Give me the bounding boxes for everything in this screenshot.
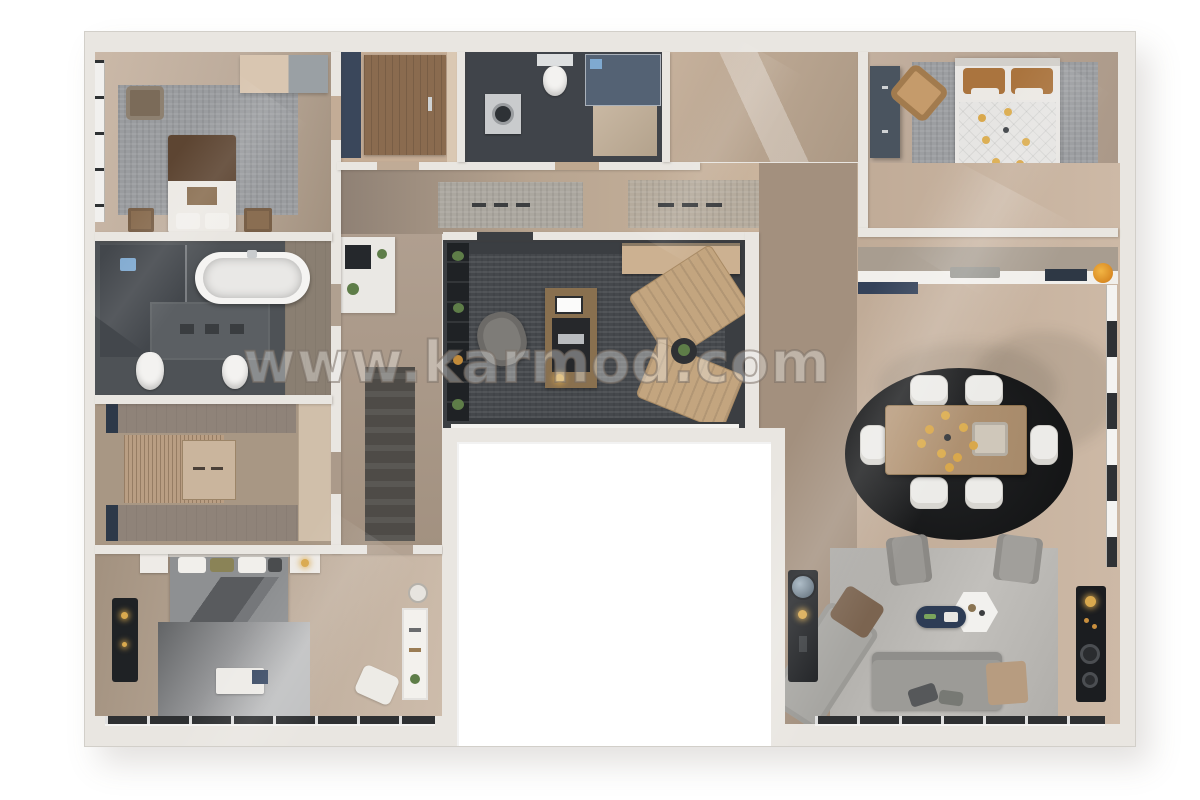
coffee-machine bbox=[345, 245, 371, 269]
navy-box bbox=[252, 670, 268, 684]
plant bbox=[452, 251, 464, 261]
quilted-duvet bbox=[959, 102, 1056, 172]
room-living-dining bbox=[759, 163, 1120, 724]
dining-table bbox=[885, 405, 1027, 475]
door-opening bbox=[367, 545, 413, 554]
tan-cushion bbox=[986, 661, 1029, 706]
corridor-horizontal bbox=[337, 163, 772, 234]
toilet bbox=[136, 352, 164, 390]
decor-dash bbox=[706, 203, 722, 207]
plant bbox=[678, 344, 690, 356]
decor-sparkle bbox=[798, 610, 807, 619]
dining-chandelier bbox=[944, 434, 951, 441]
decor-dash bbox=[472, 203, 486, 207]
dining-chair bbox=[860, 425, 888, 465]
window-wall bbox=[1106, 285, 1117, 567]
room-hall-top bbox=[670, 52, 858, 162]
armchair-1 bbox=[885, 534, 933, 587]
drain bbox=[180, 324, 194, 334]
shower-head bbox=[590, 59, 602, 69]
sofa-seat bbox=[872, 652, 1002, 710]
media-console bbox=[1076, 586, 1106, 702]
wall-below-bedroom-tr bbox=[858, 228, 1118, 237]
speaker bbox=[1082, 672, 1098, 688]
coffee-station bbox=[339, 237, 395, 313]
dark-runner bbox=[365, 367, 415, 541]
duvet-brown bbox=[168, 135, 236, 181]
pillow bbox=[178, 557, 206, 573]
shelf-bottom bbox=[106, 505, 306, 541]
plant bbox=[347, 283, 359, 295]
side-table bbox=[671, 338, 697, 364]
tub-faucet bbox=[247, 250, 257, 258]
pillow bbox=[205, 213, 229, 229]
window-strip bbox=[95, 60, 105, 222]
bookshelf bbox=[447, 243, 469, 421]
pillow bbox=[1015, 88, 1043, 100]
toilet bbox=[543, 66, 567, 96]
window-band-bottom-right bbox=[815, 716, 1105, 726]
decor-dash bbox=[409, 648, 421, 652]
room-entry-hall bbox=[337, 52, 457, 162]
room-home-office bbox=[443, 238, 745, 430]
decor-sparkle bbox=[122, 642, 127, 647]
room-bathroom-top bbox=[465, 52, 662, 162]
runner-rug-1 bbox=[438, 182, 583, 228]
room-bedroom-bottom-left bbox=[95, 553, 442, 716]
door-handle bbox=[428, 97, 432, 111]
island-dresser bbox=[182, 440, 236, 500]
dining-chair bbox=[910, 375, 948, 407]
table-lamp bbox=[301, 559, 309, 567]
table-setting bbox=[972, 422, 1008, 456]
shelf-top bbox=[106, 403, 296, 433]
armchair-2 bbox=[992, 533, 1043, 584]
decor-dot bbox=[1092, 624, 1097, 629]
black-bench bbox=[112, 598, 138, 682]
island-cabinet bbox=[858, 282, 918, 294]
wall-bath-closet bbox=[95, 395, 332, 404]
decor-dash bbox=[658, 203, 674, 207]
plant bbox=[453, 303, 464, 313]
decor-sparkle bbox=[121, 612, 128, 619]
plan-cutout bbox=[443, 428, 785, 746]
room-bathroom-left bbox=[95, 240, 332, 396]
decor-dash bbox=[516, 203, 530, 207]
drain bbox=[205, 324, 219, 334]
wardrobe bbox=[240, 55, 328, 93]
plant bbox=[452, 399, 464, 410]
nightstand-right bbox=[290, 553, 320, 573]
wardrobe-handle bbox=[882, 130, 888, 133]
floor-plan bbox=[85, 32, 1135, 746]
door-opening bbox=[331, 284, 341, 326]
floor-plan-render: www.karmod.com bbox=[0, 0, 1200, 800]
runner-rug-2 bbox=[628, 180, 770, 228]
shelf-cap bbox=[106, 403, 118, 433]
plant bbox=[410, 674, 420, 684]
decor-dash bbox=[409, 628, 421, 632]
nightstand-left bbox=[128, 208, 154, 232]
shelf-cap bbox=[106, 505, 118, 541]
wall-bed-bath bbox=[95, 232, 332, 241]
pillow-dark bbox=[268, 558, 282, 572]
front-door bbox=[364, 55, 446, 155]
drain bbox=[230, 324, 244, 334]
laptop bbox=[558, 334, 584, 344]
wall-office-dining bbox=[745, 232, 759, 436]
globe-decor bbox=[790, 574, 816, 600]
desk-mat bbox=[552, 318, 590, 372]
desk-lamp bbox=[555, 374, 564, 383]
desk bbox=[545, 288, 597, 388]
nightstand-right bbox=[244, 208, 272, 232]
stool bbox=[408, 583, 428, 603]
toilet-tank bbox=[537, 54, 573, 66]
dining-chair bbox=[910, 477, 948, 509]
room-walk-in-closet bbox=[95, 403, 332, 545]
ceiling-chandelier bbox=[1003, 127, 1009, 133]
wardrobe-right bbox=[298, 403, 332, 541]
decor-dot bbox=[968, 604, 976, 612]
bookshelf bbox=[402, 608, 428, 700]
wall-entry-bath bbox=[457, 52, 465, 162]
dining-chair bbox=[965, 375, 1003, 407]
wall-hall-bedroom bbox=[858, 52, 868, 228]
plant bbox=[377, 249, 387, 259]
door-opening bbox=[377, 162, 419, 170]
glass-shower bbox=[585, 54, 661, 106]
navy-tray-table bbox=[916, 606, 966, 628]
aloe-plant bbox=[924, 614, 936, 619]
door-opening bbox=[555, 162, 599, 170]
kitchen-sink bbox=[950, 267, 1000, 278]
fruit-bowl bbox=[1093, 263, 1113, 283]
decor-dot bbox=[1084, 618, 1089, 623]
wall-bath-hall bbox=[662, 52, 670, 162]
room-bedroom-top-left bbox=[95, 52, 332, 233]
pillow bbox=[971, 88, 999, 100]
nightstand-left bbox=[140, 553, 168, 573]
decor-dash bbox=[682, 203, 698, 207]
decor-dot bbox=[979, 610, 985, 616]
wardrobe-handle bbox=[882, 86, 888, 89]
cooktop bbox=[1045, 269, 1087, 281]
decor-book bbox=[944, 612, 958, 622]
washer-door bbox=[492, 103, 514, 125]
pillow bbox=[176, 213, 200, 229]
floor-strip bbox=[447, 52, 457, 162]
bed-tray bbox=[187, 187, 217, 205]
pillow bbox=[238, 557, 266, 573]
decor-dash bbox=[494, 203, 508, 207]
remote bbox=[799, 636, 807, 652]
pillow-olive bbox=[210, 558, 234, 572]
door-opening bbox=[477, 232, 533, 240]
door-opening bbox=[331, 96, 341, 140]
bidet bbox=[222, 355, 248, 389]
door-opening bbox=[331, 452, 341, 494]
drawer-handle bbox=[211, 467, 223, 470]
freestanding-bathtub bbox=[195, 252, 310, 304]
dining-chair bbox=[1030, 425, 1058, 465]
tv-console bbox=[788, 570, 818, 682]
window-band-bottom-left bbox=[105, 716, 435, 726]
double-bed bbox=[168, 135, 236, 233]
wardrobe bbox=[870, 66, 900, 158]
drawer-handle bbox=[193, 467, 205, 470]
dining-chair bbox=[965, 477, 1003, 509]
dried-plant bbox=[1085, 596, 1096, 607]
tub-basin bbox=[203, 258, 302, 298]
shower-head bbox=[120, 258, 136, 271]
headboard bbox=[955, 58, 1060, 66]
bench bbox=[126, 86, 164, 120]
monitor bbox=[555, 296, 583, 314]
bath-mat bbox=[593, 106, 657, 156]
floor-pillow bbox=[354, 664, 401, 707]
decor-pot bbox=[453, 355, 463, 365]
washing-machine bbox=[485, 94, 521, 134]
speaker bbox=[1080, 644, 1100, 664]
